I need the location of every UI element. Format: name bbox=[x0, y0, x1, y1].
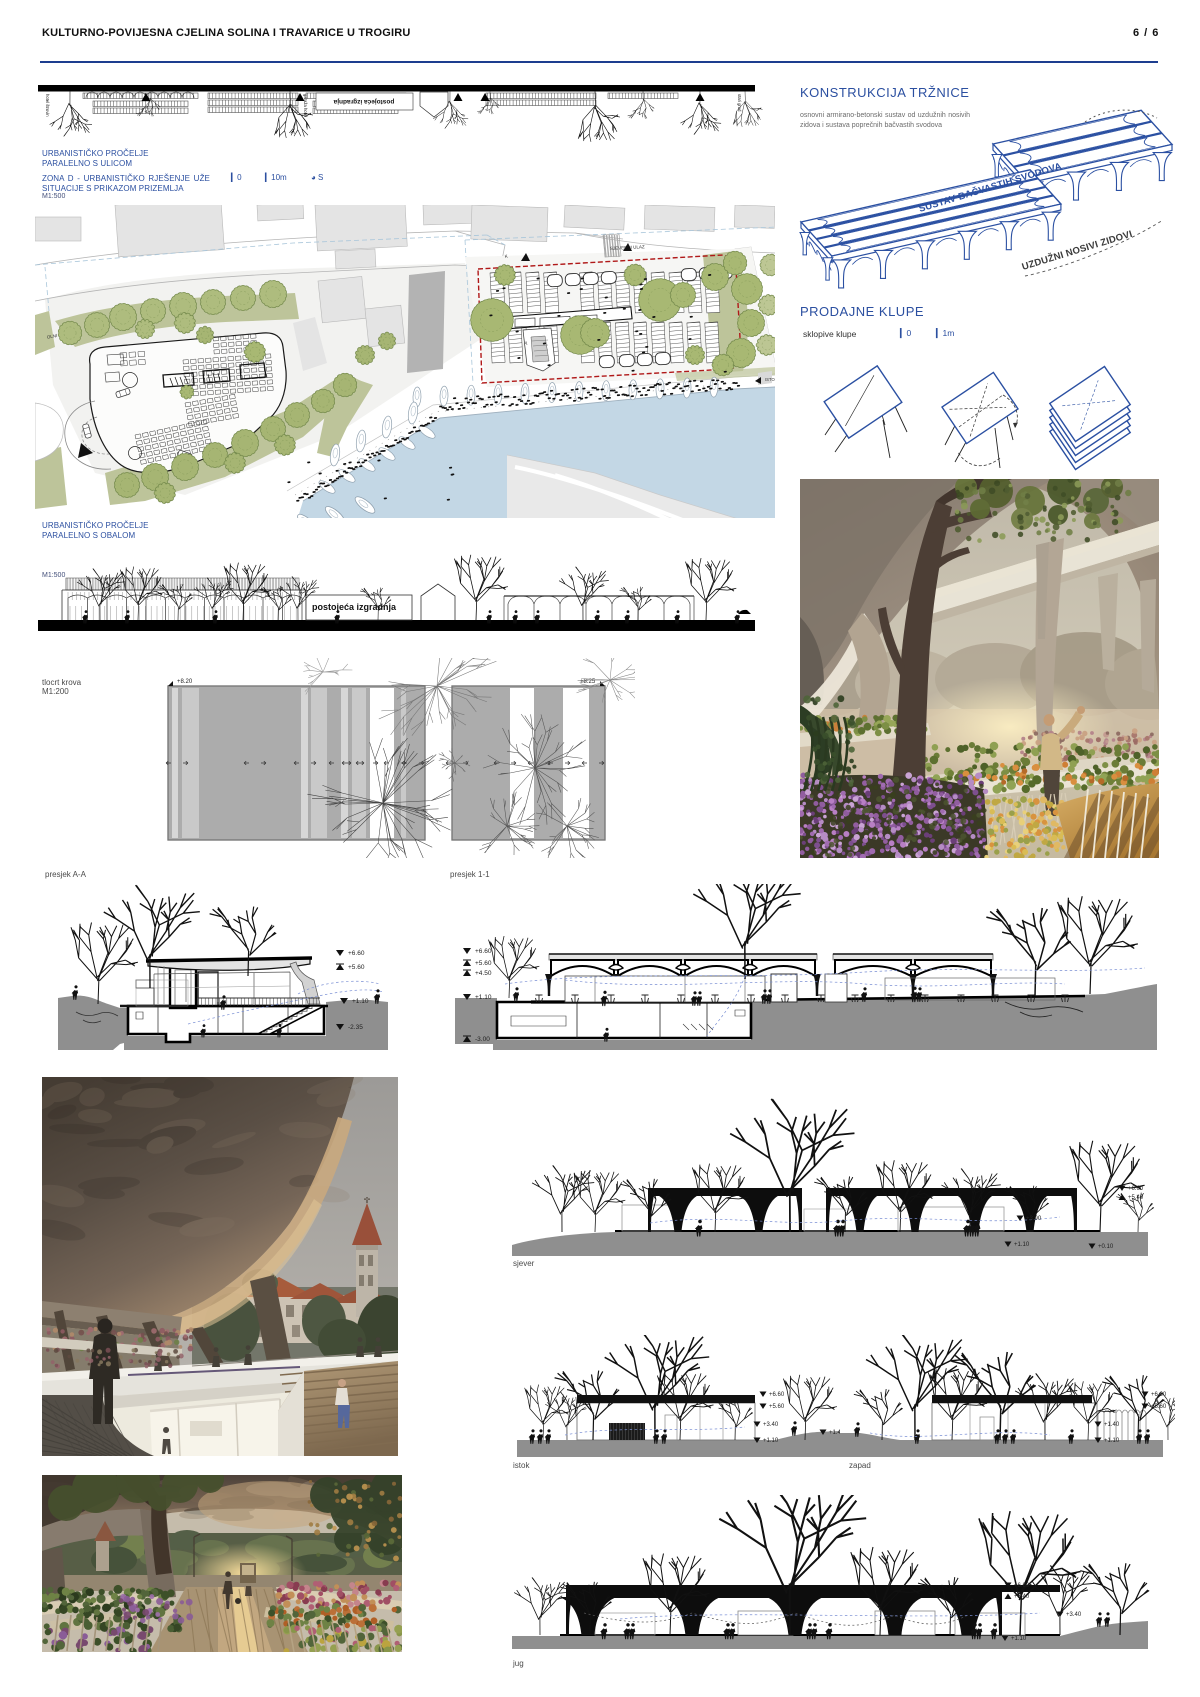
svg-text:+6.60: +6.60 bbox=[769, 1392, 785, 1398]
svg-text:+1.10: +1.10 bbox=[475, 994, 492, 1001]
svg-text:+1.10: +1.10 bbox=[352, 998, 369, 1005]
svg-text:UZDUŽNI NOSIVI ZIDOVI: UZDUŽNI NOSIVI ZIDOVI bbox=[1020, 228, 1134, 273]
svg-text:+1.40: +1.40 bbox=[1104, 1422, 1120, 1428]
svg-text:+8.20: +8.20 bbox=[177, 679, 193, 685]
svg-text:+1.10: +1.10 bbox=[1104, 1438, 1120, 1444]
svg-text:+6.60: +6.60 bbox=[1128, 1186, 1144, 1192]
svg-text:-2.35: -2.35 bbox=[348, 1024, 363, 1031]
svg-text:+5.40: +5.40 bbox=[1014, 1594, 1030, 1600]
svg-text:+3.90: +3.90 bbox=[1026, 1216, 1042, 1222]
svg-text:hotel štrovin: hotel štrovin bbox=[45, 94, 50, 117]
svg-text:-3.00: -3.00 bbox=[475, 1036, 490, 1043]
svg-text:+6.60: +6.60 bbox=[348, 950, 365, 957]
svg-text:+3.40: +3.40 bbox=[1066, 1612, 1082, 1618]
svg-text:+5.60: +5.60 bbox=[348, 964, 365, 971]
svg-text:+5.60: +5.60 bbox=[769, 1404, 785, 1410]
svg-text:+6.60: +6.60 bbox=[1151, 1392, 1167, 1398]
svg-text:ISTOČNI ULAZ: ISTOČNI ULAZ bbox=[765, 377, 775, 382]
svg-text:+5.60: +5.60 bbox=[1151, 1404, 1167, 1410]
svg-text:postojeća izgradnja: postojeća izgradnja bbox=[312, 602, 397, 612]
svg-text:+1.10: +1.10 bbox=[1011, 1636, 1027, 1642]
svg-text:+5.40: +5.40 bbox=[1128, 1195, 1144, 1201]
svg-text:+6.60: +6.60 bbox=[1014, 1583, 1030, 1589]
svg-text:+4.50: +4.50 bbox=[475, 970, 492, 977]
svg-text:stari grad: stari grad bbox=[737, 94, 742, 112]
svg-text:+0.10: +0.10 bbox=[1098, 1244, 1114, 1250]
svg-text:+1.40: +1.40 bbox=[829, 1430, 840, 1436]
svg-text:+3.40: +3.40 bbox=[763, 1422, 779, 1428]
svg-text:+6.60: +6.60 bbox=[475, 948, 492, 955]
svg-text:+5.60: +5.60 bbox=[475, 960, 492, 967]
svg-text:+1.10: +1.10 bbox=[763, 1438, 779, 1444]
svg-text:+1.10: +1.10 bbox=[1014, 1242, 1030, 1248]
svg-text:postojeća izgradnja: postojeća izgradnja bbox=[333, 98, 394, 105]
